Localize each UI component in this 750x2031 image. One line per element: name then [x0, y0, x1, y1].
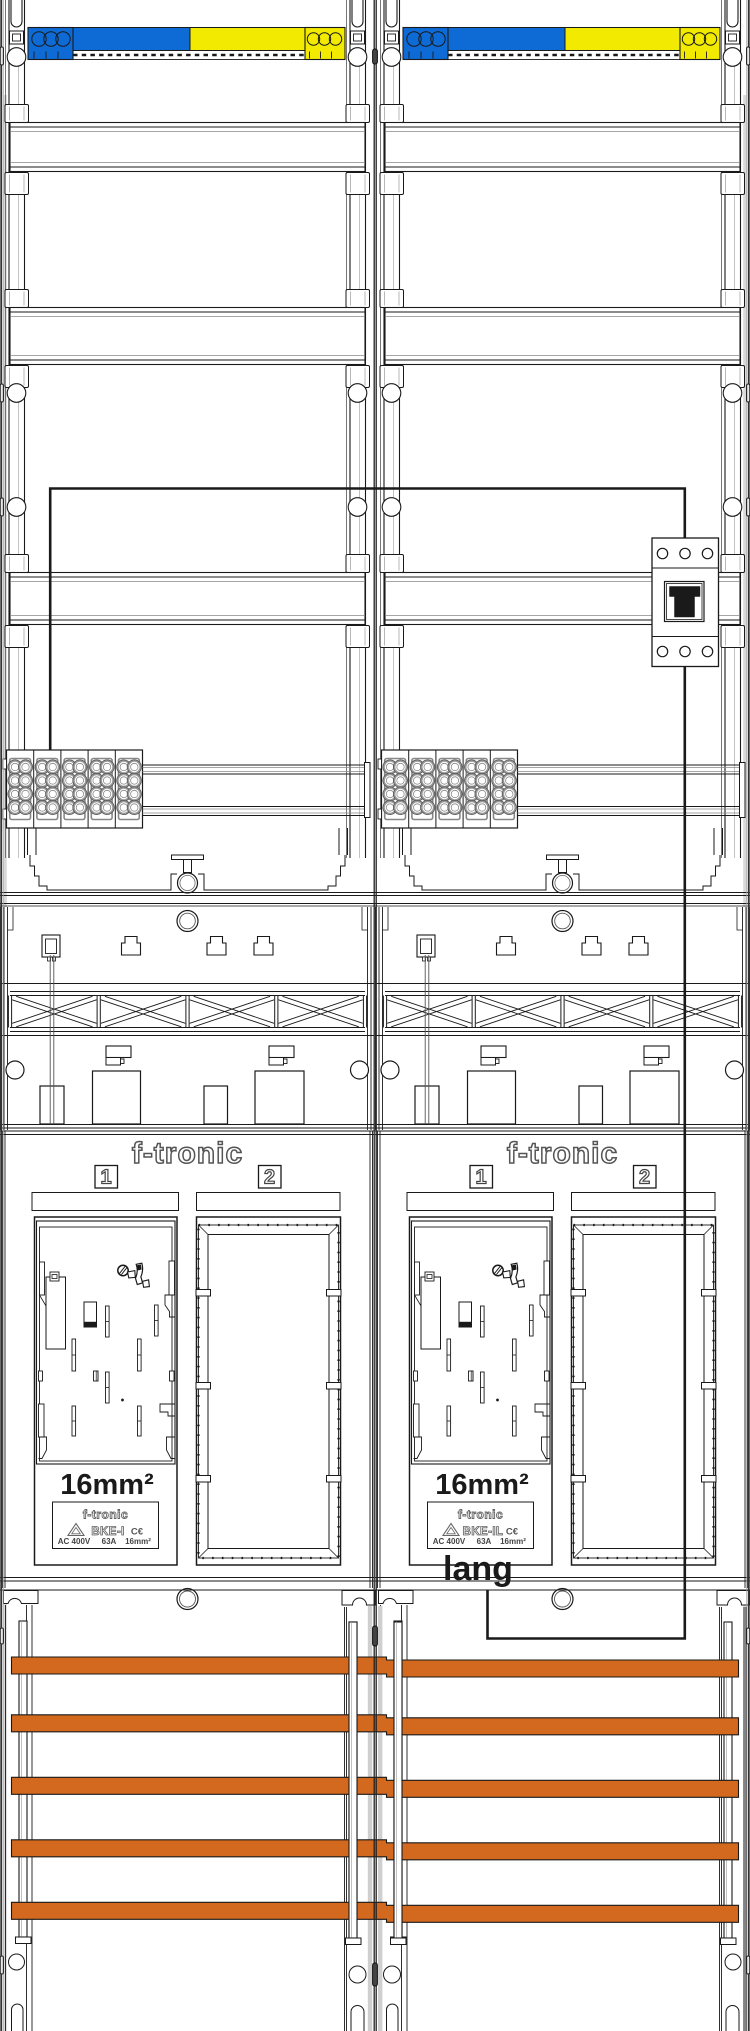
- svg-text:C€: C€: [506, 1527, 519, 1538]
- svg-text:f-tronic: f-tronic: [83, 1508, 128, 1522]
- svg-text:2: 2: [264, 1167, 275, 1189]
- svg-text:f-tronic: f-tronic: [507, 1137, 618, 1170]
- svg-text:f-tronic: f-tronic: [132, 1137, 243, 1170]
- svg-text:AC 400V63A16mm²: AC 400V63A16mm²: [58, 1537, 151, 1546]
- svg-text:AC 400V63A16mm²: AC 400V63A16mm²: [433, 1537, 526, 1546]
- svg-text:2: 2: [639, 1167, 650, 1189]
- svg-text:16mm²: 16mm²: [60, 1469, 154, 1501]
- svg-text:lang: lang: [443, 1550, 513, 1588]
- svg-text:1: 1: [475, 1167, 486, 1189]
- svg-text:C€: C€: [131, 1527, 144, 1538]
- svg-text:1: 1: [100, 1167, 111, 1189]
- svg-text:16mm²: 16mm²: [435, 1469, 529, 1501]
- svg-text:f-tronic: f-tronic: [458, 1508, 503, 1522]
